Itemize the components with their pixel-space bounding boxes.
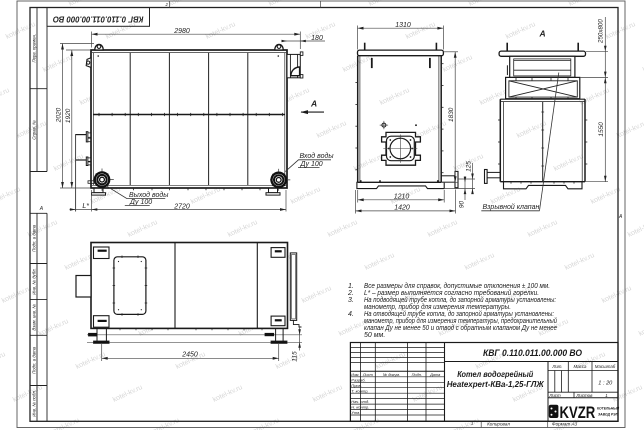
- svg-text:Разраб.: Разраб.: [351, 377, 365, 382]
- svg-text:Справ. №: Справ. №: [31, 120, 36, 140]
- svg-text:2.: 2.: [347, 290, 354, 297]
- svg-text:КВГ 0.110.011.00.000 ВО: КВГ 0.110.011.00.000 ВО: [53, 15, 144, 24]
- svg-text:ЗАВОД РЭП: ЗАВОД РЭП: [598, 412, 619, 416]
- svg-text:1310: 1310: [395, 22, 411, 29]
- svg-text:Взам. инв. №: Взам. инв. №: [31, 304, 36, 331]
- svg-text:L* – размер выполняется соглас: L* – размер выполняется согласно требова…: [364, 289, 539, 297]
- svg-text:Лист: Лист: [362, 372, 374, 377]
- svg-text:1 : 20: 1 : 20: [598, 381, 613, 387]
- svg-text:1550: 1550: [598, 122, 605, 137]
- svg-text:Лит.: Лит.: [551, 364, 562, 369]
- svg-text:Инв. № подл.: Инв. № подл.: [31, 390, 36, 417]
- svg-text:Т. контр.: Т. контр.: [351, 388, 368, 393]
- svg-text:А: А: [539, 29, 546, 39]
- svg-text:Изм.: Изм.: [351, 372, 359, 377]
- svg-text:Подп.: Подп.: [412, 372, 422, 377]
- svg-text:125: 125: [466, 161, 473, 172]
- svg-text:1920: 1920: [65, 108, 72, 123]
- svg-text:Нач. отд.: Нач. отд.: [351, 399, 369, 404]
- svg-text:2020: 2020: [56, 107, 63, 123]
- svg-text:50 мм.: 50 мм.: [364, 332, 385, 339]
- svg-text:2720: 2720: [173, 203, 190, 210]
- svg-text:Котел водогрейный: Котел водогрейный: [457, 369, 534, 379]
- svg-text:1210: 1210: [394, 194, 410, 201]
- svg-text:Масса: Масса: [574, 364, 588, 369]
- svg-text:Вход воды: Вход воды: [300, 152, 335, 160]
- svg-text:КОТЕЛЬНЫЙ: КОТЕЛЬНЫЙ: [597, 407, 620, 411]
- svg-text:Формат А3: Формат А3: [552, 421, 578, 426]
- svg-text:Инв. № дубл.: Инв. № дубл.: [31, 268, 36, 294]
- svg-text:Листов: Листов: [575, 393, 593, 398]
- svg-text:Взрывной клапан: Взрывной клапан: [483, 203, 540, 211]
- svg-text:№ докум.: № докум.: [383, 372, 400, 377]
- svg-text:манометр, прибор для измерения: манометр, прибор для измерения температу…: [364, 317, 557, 325]
- svg-text:Копировал: Копировал: [487, 421, 510, 426]
- svg-text:90: 90: [459, 201, 466, 209]
- svg-text:250х800: 250х800: [598, 19, 605, 44]
- svg-text:Ду 100: Ду 100: [129, 199, 152, 206]
- svg-text:Подп. и дата: Подп. и дата: [31, 224, 36, 252]
- svg-text:KVZR: KVZR: [560, 404, 596, 422]
- svg-text:Н. контр.: Н. контр.: [351, 405, 369, 410]
- svg-text:180: 180: [311, 35, 323, 42]
- svg-text:Перв. примен.: Перв. примен.: [31, 34, 36, 63]
- svg-text:Масштаб: Масштаб: [595, 364, 616, 369]
- svg-text:115: 115: [291, 351, 298, 362]
- svg-text:КВГ 0.110.011.00.000 ВО: КВГ 0.110.011.00.000 ВО: [483, 348, 583, 359]
- svg-text:1.: 1.: [348, 283, 354, 290]
- svg-text:L*: L*: [82, 203, 89, 210]
- svg-text:Heatexpert-КВа-1,25-ГЛЖ: Heatexpert-КВа-1,25-ГЛЖ: [447, 379, 545, 389]
- svg-text:Дата: Дата: [429, 372, 441, 377]
- svg-text:А: А: [618, 214, 623, 220]
- svg-text:клапан Ду не менее 50 и отвод: клапан Ду не менее 50 и отвод с обратным…: [364, 324, 557, 332]
- svg-text:Пров.: Пров.: [351, 383, 362, 388]
- svg-text:2980: 2980: [173, 28, 190, 35]
- svg-text:Все размеры для справок, допус: Все размеры для справок, допустимые откл…: [364, 282, 550, 290]
- svg-text:3.: 3.: [348, 297, 354, 304]
- svg-text:Подп. и дата: Подп. и дата: [31, 346, 36, 374]
- svg-text:А: А: [310, 99, 317, 109]
- svg-text:Ду 100: Ду 100: [300, 161, 323, 168]
- svg-text:манометр, прибор для измерения: манометр, прибор для измерения температу…: [364, 303, 511, 311]
- svg-text:1420: 1420: [394, 205, 410, 212]
- svg-text:1830: 1830: [448, 107, 455, 122]
- svg-text:Утв.: Утв.: [351, 410, 360, 415]
- svg-text:4.: 4.: [348, 311, 354, 318]
- svg-text:Выход воды: Выход воды: [129, 191, 169, 199]
- svg-text:На отводящей трубе котла, до з: На отводящей трубе котла, до запорной ар…: [364, 310, 554, 318]
- svg-text:На подводящей трубе котла, до: На подводящей трубе котла, до запорной а…: [364, 296, 556, 304]
- svg-text:Лист: Лист: [548, 393, 561, 398]
- svg-text:А: А: [39, 206, 44, 212]
- svg-text:2450: 2450: [181, 352, 198, 359]
